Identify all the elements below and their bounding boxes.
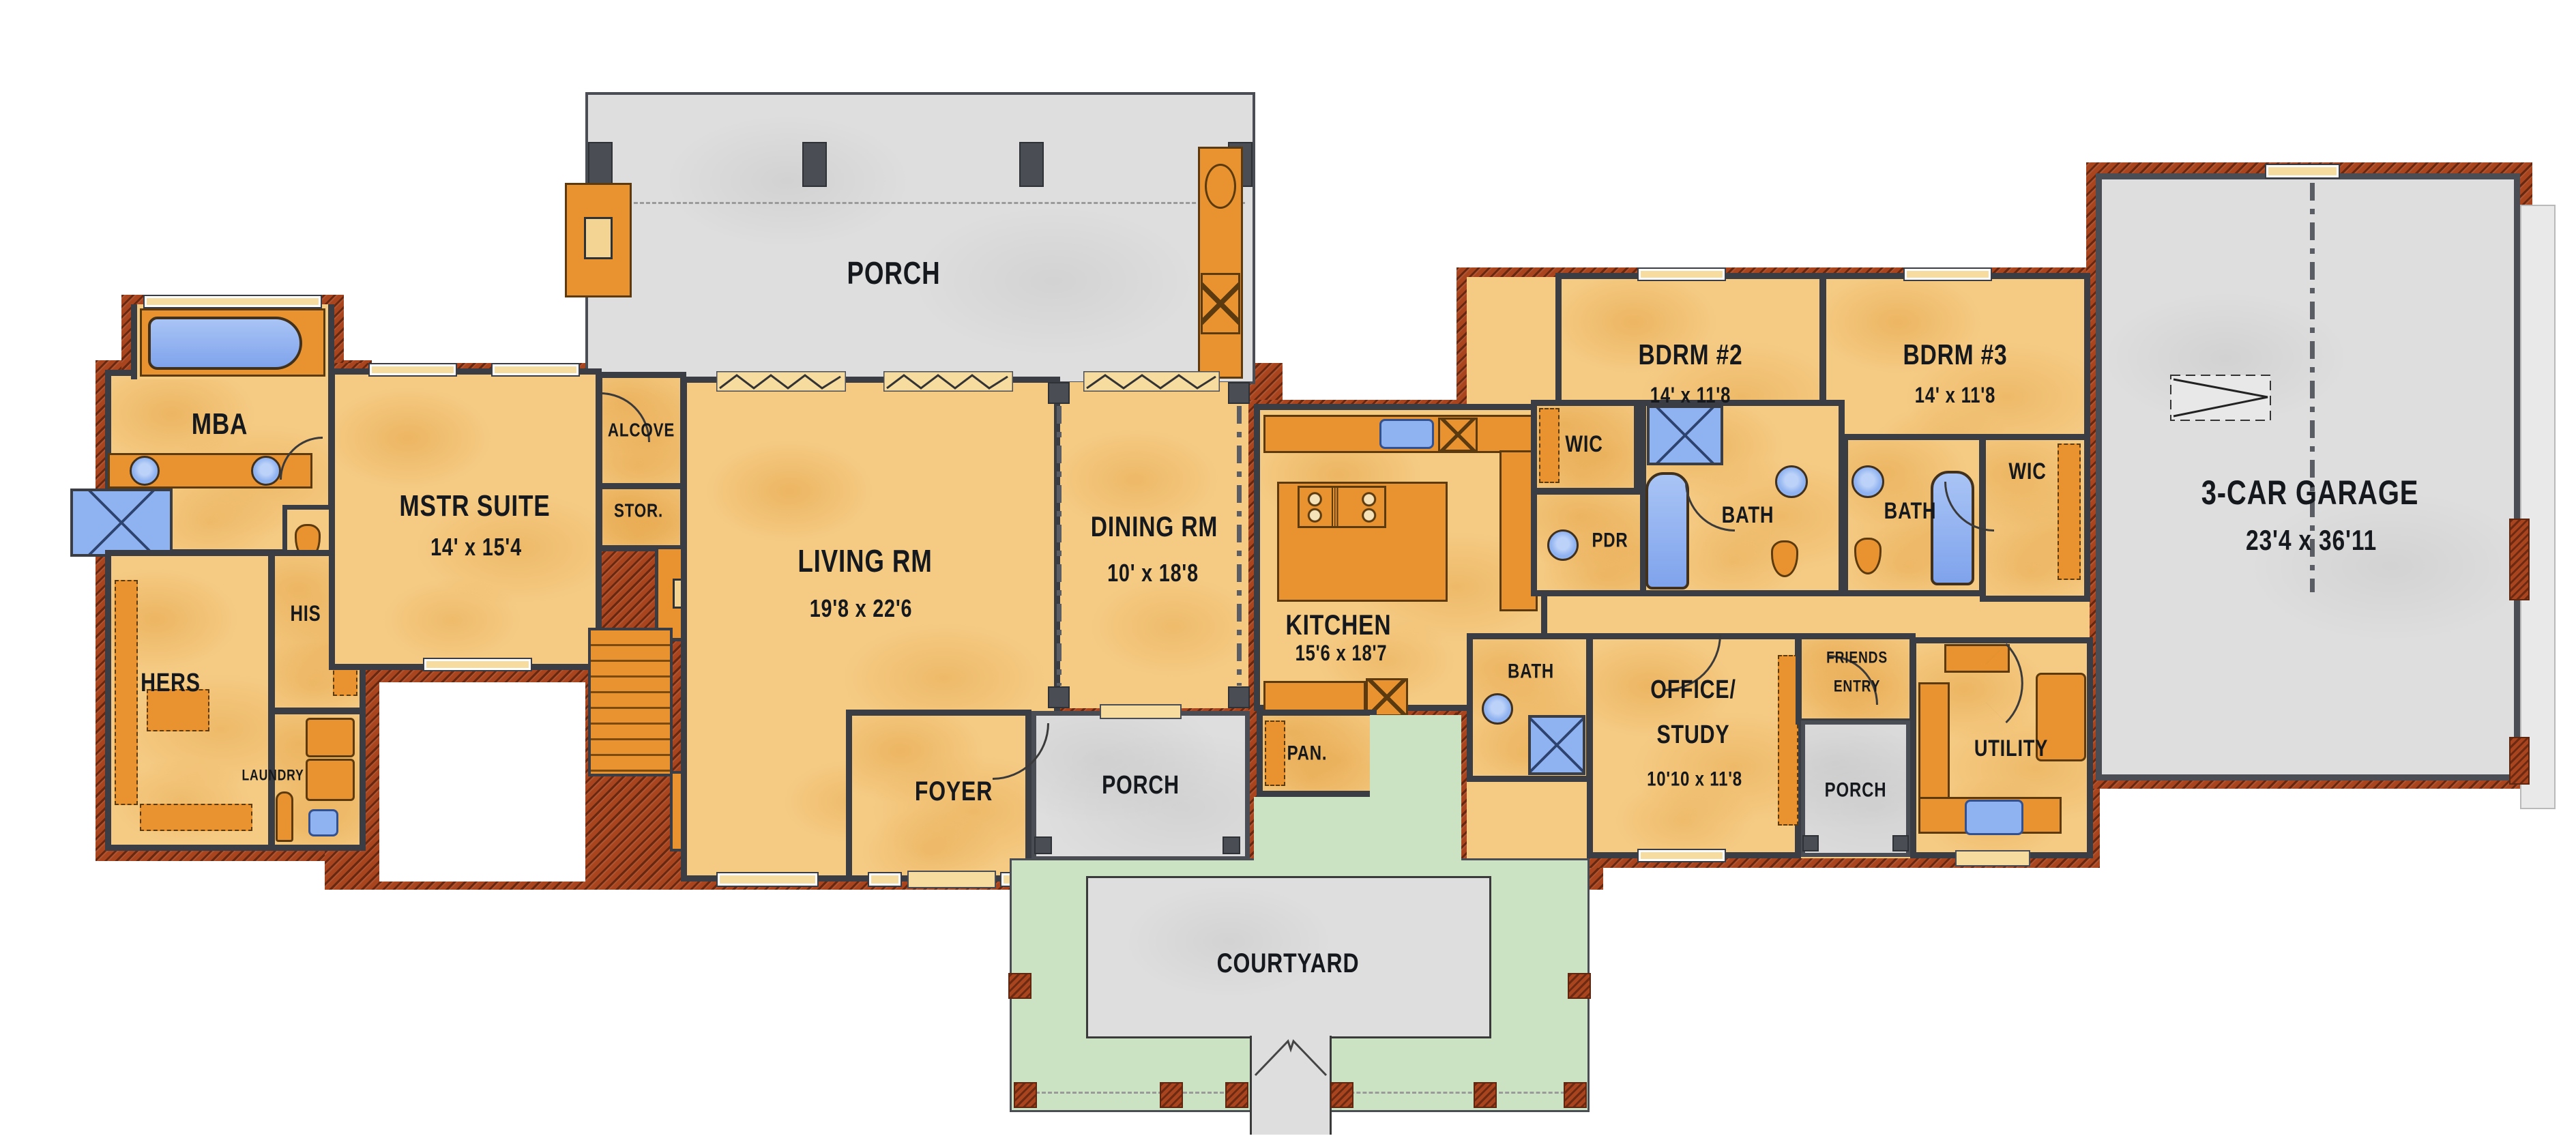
- outdoor-grill-oval: [1205, 164, 1236, 209]
- hers-shelving-left: [115, 580, 138, 805]
- dining-column: [1048, 686, 1070, 708]
- courtyard-pier: [1014, 1082, 1037, 1108]
- dining-column: [1228, 686, 1250, 708]
- stairs-upper-run: [588, 628, 673, 776]
- label-porch-right: PORCH: [1825, 779, 1887, 801]
- mstr-top-window: [368, 363, 457, 377]
- label-friends-2: ENTRY: [1834, 678, 1880, 695]
- dining-column: [1048, 382, 1070, 404]
- label-garage-dims: 23'4 x 36'11: [2246, 525, 2377, 555]
- porch-center-post: [1223, 836, 1240, 854]
- outdoor-kitchen-cabinet: [1201, 273, 1240, 334]
- garage-attic-stair-symbol: [2169, 374, 2272, 422]
- porch-post: [802, 142, 827, 187]
- courtyard-lawn-below-pantry: [1254, 797, 1371, 861]
- courtyard-pier: [1564, 1082, 1587, 1108]
- room-dining-zone: [1060, 382, 1248, 708]
- courtyard-pier: [1225, 1082, 1248, 1108]
- label-mstr-dims: 14' x 15'4: [430, 534, 522, 560]
- courtyard-pier: [1568, 973, 1591, 999]
- label-pan: PAN.: [1287, 742, 1328, 764]
- pantry-shelf: [1265, 720, 1285, 786]
- front-door: [907, 871, 996, 888]
- laundry-ironing-board: [276, 791, 293, 842]
- courtyard-pier: [1008, 973, 1031, 999]
- courtyard-rail: [1023, 1092, 1248, 1094]
- label-wic-left: WIC: [1565, 433, 1602, 457]
- office-window: [1637, 849, 1726, 862]
- courtyard-pier: [1474, 1082, 1497, 1108]
- label-bdrm3-dims: 14' x 11'8: [1915, 384, 1995, 407]
- courtyard-pier: [1330, 1082, 1353, 1108]
- label-alcove: ALCOVE: [608, 420, 675, 439]
- bath-office-shower: [1528, 715, 1585, 775]
- label-friends-1: FRIENDS: [1826, 649, 1888, 666]
- bath2-shower: [1647, 405, 1723, 465]
- label-porch-top: PORCH: [847, 257, 941, 289]
- label-bath3: BATH: [1884, 499, 1937, 524]
- room-porch-top: [585, 92, 1255, 384]
- utility-exterior-door: [1955, 850, 2030, 866]
- label-hers: HERS: [141, 670, 201, 697]
- porch-center-edge-line: [1038, 843, 1243, 848]
- living-front-window: [716, 872, 819, 887]
- garage-door-pier: [2509, 519, 2530, 600]
- kitchen-corner-cabinet: [1438, 418, 1478, 452]
- label-wic-right: WIC: [2008, 460, 2046, 484]
- label-living-dims: 19'8 x 22'6: [810, 596, 913, 622]
- porch-right-post: [1802, 835, 1819, 851]
- label-mstr: MSTR SUITE: [399, 491, 550, 522]
- label-porch-center: PORCH: [1102, 772, 1180, 800]
- mba-sink: [251, 456, 281, 486]
- wic-right-shelf: [2058, 443, 2081, 580]
- mba-shower: [70, 489, 173, 557]
- label-garage: 3-CAR GARAGE: [2201, 475, 2419, 511]
- courtyard-rail: [1332, 1092, 1577, 1094]
- porch-top-beam-line: [597, 168, 1245, 173]
- label-office-1: OFFICE/: [1650, 677, 1736, 704]
- dining-column: [1228, 382, 1250, 404]
- label-office-dims: 10'10 x 11'8: [1647, 768, 1742, 790]
- bdrm3-window: [1903, 267, 1992, 281]
- bdrm2-window: [1637, 267, 1726, 281]
- mstr-bottom-window: [423, 658, 532, 671]
- utility-sink: [1965, 800, 2023, 835]
- courtyard-gate-symbol: [1253, 1037, 1329, 1078]
- label-utility: UTILITY: [1974, 737, 2048, 761]
- label-bdrm2-dims: 14' x 11'8: [1650, 384, 1731, 407]
- porch-top-roof-dash: [597, 202, 1245, 204]
- kitchen-bottom-counter: [1263, 681, 1366, 714]
- dining-accordion-door: [1083, 371, 1220, 392]
- wic-left-shelf: [1539, 408, 1560, 483]
- label-pdr: PDR: [1592, 529, 1628, 551]
- porch-center-door: [1100, 704, 1182, 719]
- dining-open-wall-line: [1057, 406, 1062, 686]
- label-stor: STOR.: [614, 500, 663, 520]
- porch-right-edge-line: [1806, 842, 1905, 847]
- porch-post: [588, 142, 613, 187]
- garage-top-window: [2265, 164, 2340, 179]
- mba-bay-window: [143, 295, 322, 308]
- label-living: LIVING RM: [797, 544, 932, 577]
- bath2-sink: [1775, 465, 1808, 498]
- garage-door-header: [2354, 205, 2511, 209]
- bath-office-sink: [1482, 693, 1513, 725]
- laundry-sink: [308, 809, 338, 836]
- label-office-2: STUDY: [1656, 722, 1729, 749]
- bath2-tub: [1645, 472, 1689, 589]
- courtyard-lawn-upper-right: [1370, 715, 1461, 861]
- garage-bay-divider-h: [2105, 589, 2514, 594]
- label-his: HIS: [290, 602, 321, 626]
- laundry-dryer: [306, 759, 355, 801]
- label-bath-office: BATH: [1508, 660, 1554, 682]
- garage-door-pier: [2509, 737, 2530, 785]
- kitchen-range: [1298, 486, 1386, 528]
- front-sidelight: [868, 872, 902, 887]
- utility-counter-left: [1918, 682, 1950, 805]
- label-mba: MBA: [192, 409, 248, 440]
- courtyard-pier: [1160, 1082, 1183, 1108]
- floor-plan-page: { "plan": { "rooms": { "porch_top": {"la…: [0, 0, 2576, 1136]
- bath3-sink: [1851, 465, 1884, 498]
- dining-open-wall-line: [1237, 406, 1242, 686]
- mba-tub: [148, 317, 302, 370]
- garage-apron: [2520, 205, 2556, 809]
- porch-right-post: [1892, 835, 1909, 851]
- label-dining: DINING RM: [1091, 512, 1218, 542]
- label-courtyard: COURTYARD: [1217, 949, 1360, 978]
- label-bdrm3: BDRM #3: [1903, 340, 2007, 370]
- label-kitchen-dims: 15'6 x 18'7: [1296, 642, 1388, 665]
- porch-center-post: [1034, 836, 1052, 854]
- label-bdrm2: BDRM #2: [1638, 340, 1742, 370]
- porch-fireplace-firebox: [584, 217, 613, 259]
- laundry-washer: [306, 718, 355, 757]
- label-dining-dims: 10' x 18'8: [1107, 560, 1199, 586]
- label-laundry: LAUNDRY: [242, 767, 304, 783]
- mba-sink: [130, 456, 160, 486]
- garage-door-header: [2354, 652, 2511, 656]
- exterior-notch: [379, 682, 585, 882]
- pdr-sink: [1547, 529, 1579, 561]
- mstr-top-window: [491, 363, 580, 377]
- label-kitchen: KITCHEN: [1286, 610, 1392, 640]
- living-accordion-door: [883, 371, 1013, 392]
- hers-shelving-bottom: [140, 804, 252, 831]
- porch-post: [1019, 142, 1044, 187]
- label-foyer: FOYER: [915, 777, 993, 806]
- living-accordion-door: [716, 371, 846, 392]
- label-bath2: BATH: [1722, 504, 1774, 528]
- kitchen-sink: [1379, 419, 1434, 449]
